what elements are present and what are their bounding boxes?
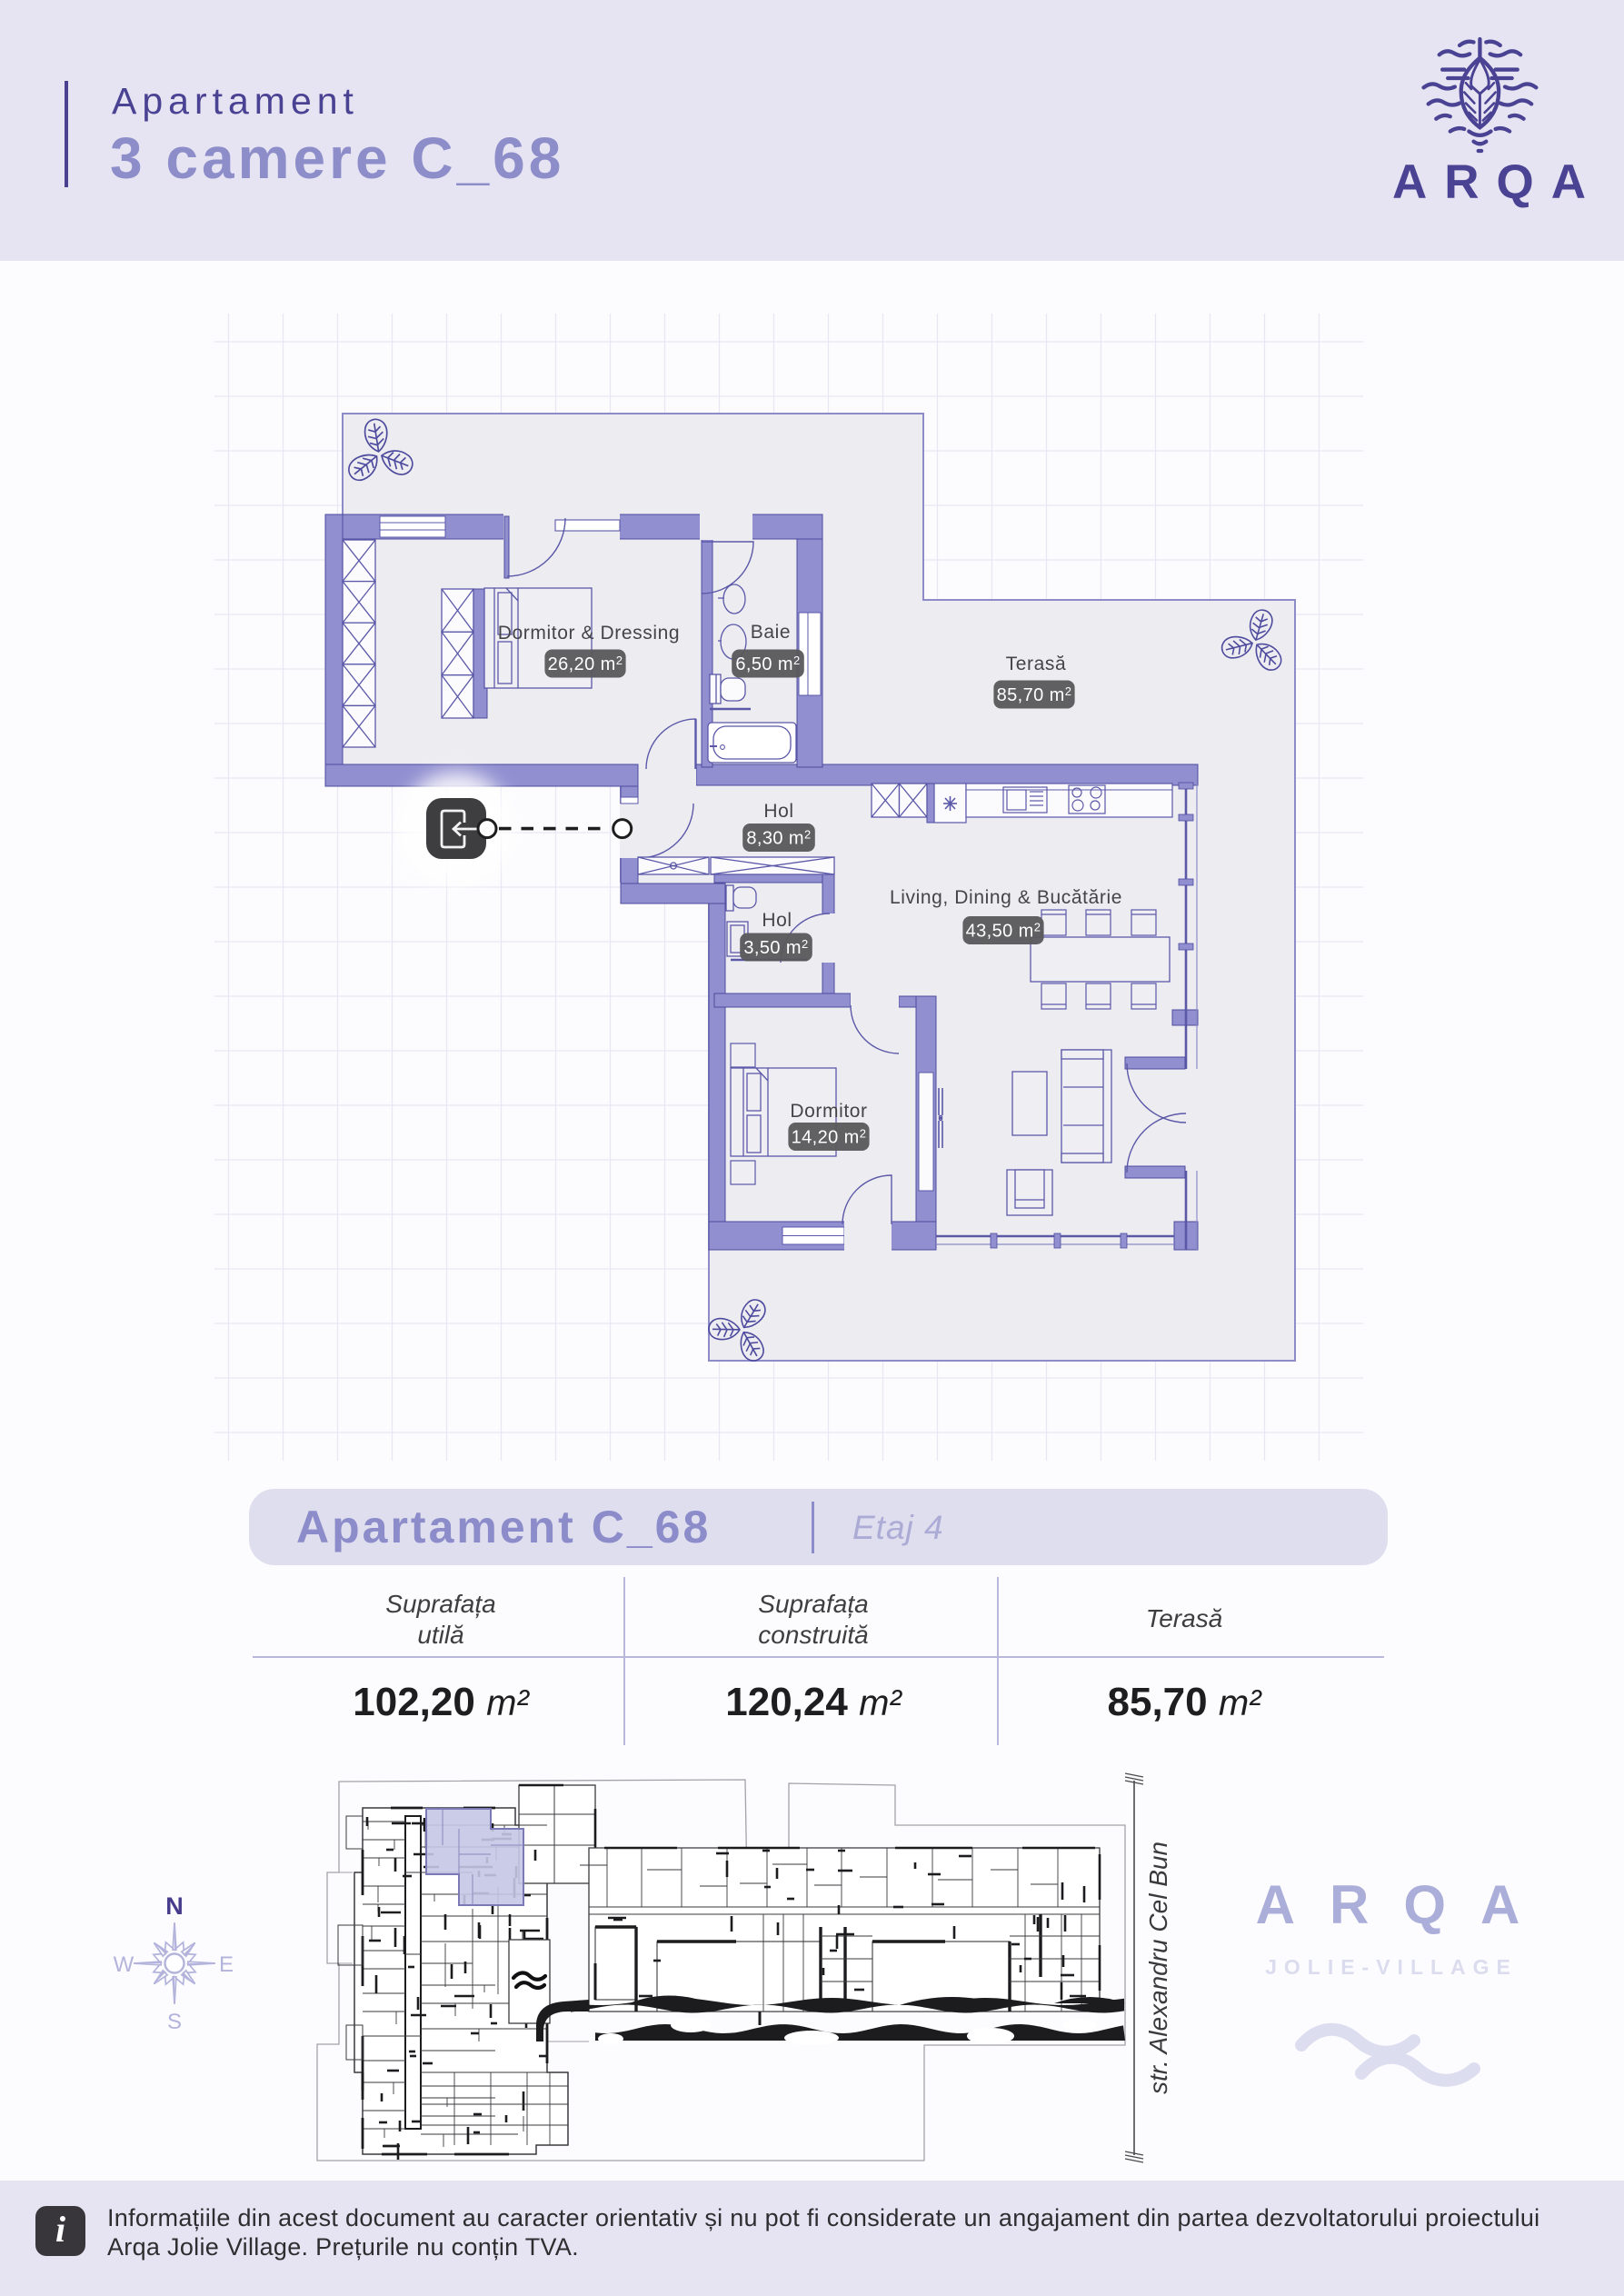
svg-text:Terasă: Terasă [1006, 654, 1067, 674]
svg-text:Living, Dining & Bucătărie: Living, Dining & Bucătărie [890, 887, 1122, 908]
svg-text:W: W [114, 1952, 135, 1977]
svg-text:Baie: Baie [751, 622, 791, 643]
svg-text:ARQA: ARQA [1256, 1874, 1554, 1935]
svg-text:Hol: Hol [763, 801, 793, 822]
svg-text:Dormitor: Dormitor [790, 1101, 867, 1122]
svg-text:E: E [219, 1952, 234, 1977]
svg-text:14,20 m2: 14,20 m2 [792, 1127, 867, 1148]
svg-text:8,30 m2: 8,30 m2 [746, 828, 811, 849]
svg-text:85,70 m2: 85,70 m2 [997, 684, 1072, 705]
svg-text:JOLIE-VILLAGE: JOLIE-VILLAGE [1265, 1955, 1518, 1979]
svg-text:26,20 m2: 26,20 m2 [548, 654, 623, 674]
svg-text:43,50 m2: 43,50 m2 [966, 921, 1041, 942]
svg-text:Dormitor & Dressing: Dormitor & Dressing [498, 623, 680, 644]
svg-text:Hol: Hol [762, 910, 792, 931]
svg-text:str. Alexandru Cel Bun: str. Alexandru Cel Bun [1144, 1842, 1172, 2094]
svg-text:6,50 m2: 6,50 m2 [735, 654, 800, 674]
svg-text:ARQA: ARQA [1392, 155, 1589, 209]
svg-text:N: N [165, 1892, 184, 1920]
svg-text:3,50 m2: 3,50 m2 [743, 937, 808, 958]
svg-text:S: S [167, 2010, 182, 2034]
